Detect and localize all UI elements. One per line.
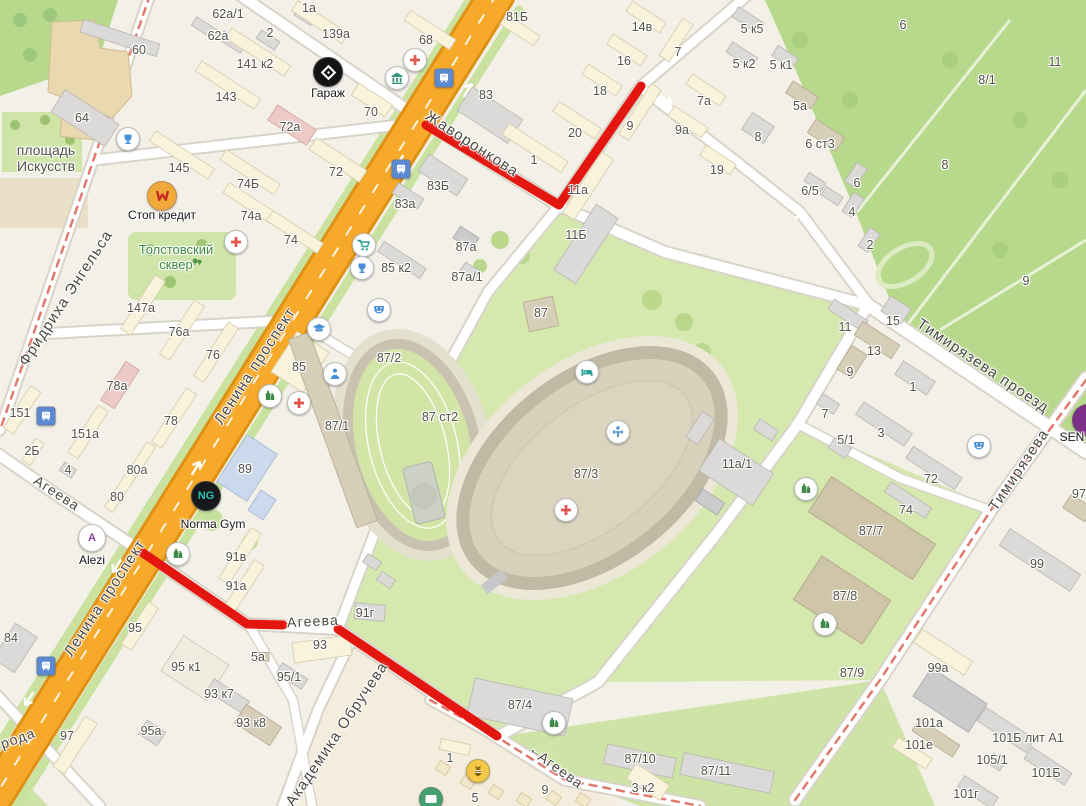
bus-icon[interactable] bbox=[392, 160, 411, 179]
stopw-icon[interactable] bbox=[147, 181, 177, 211]
bottle-icon[interactable] bbox=[794, 477, 818, 501]
map-graphics bbox=[0, 0, 1086, 806]
cross-icon[interactable] bbox=[554, 498, 578, 522]
cross-icon[interactable] bbox=[224, 230, 248, 254]
trees-icon[interactable] bbox=[188, 253, 206, 271]
route-segment bbox=[143, 553, 283, 625]
bed-icon[interactable] bbox=[575, 360, 599, 384]
bottle-icon[interactable] bbox=[258, 384, 282, 408]
masks-icon[interactable] bbox=[367, 298, 391, 322]
fountain-icon[interactable] bbox=[350, 256, 374, 280]
bottle-icon[interactable] bbox=[813, 612, 837, 636]
diamond-icon[interactable] bbox=[313, 57, 343, 87]
cap-icon[interactable] bbox=[307, 317, 331, 341]
bus-icon[interactable] bbox=[435, 69, 454, 88]
bottle-icon[interactable] bbox=[166, 542, 190, 566]
sport-icon[interactable] bbox=[606, 420, 630, 444]
cross-icon[interactable] bbox=[403, 48, 427, 72]
bus-icon[interactable] bbox=[37, 657, 56, 676]
masks-icon[interactable] bbox=[967, 434, 991, 458]
cart-icon[interactable] bbox=[352, 233, 376, 257]
bottle-icon[interactable] bbox=[542, 711, 566, 735]
bus-icon[interactable] bbox=[37, 407, 56, 426]
bee-icon[interactable] bbox=[466, 759, 490, 783]
brand-icon[interactable]: A bbox=[78, 524, 106, 552]
cross-icon[interactable] bbox=[287, 391, 311, 415]
mail-icon[interactable] bbox=[419, 787, 443, 806]
brand-icon[interactable]: NG bbox=[191, 481, 221, 511]
bank-icon[interactable] bbox=[385, 66, 409, 90]
map-canvas[interactable]: 62а/162а1а2139а60141 к21436472а1457274Б7… bbox=[0, 0, 1086, 806]
person-icon[interactable] bbox=[323, 362, 347, 386]
fountain-icon[interactable] bbox=[116, 127, 140, 151]
